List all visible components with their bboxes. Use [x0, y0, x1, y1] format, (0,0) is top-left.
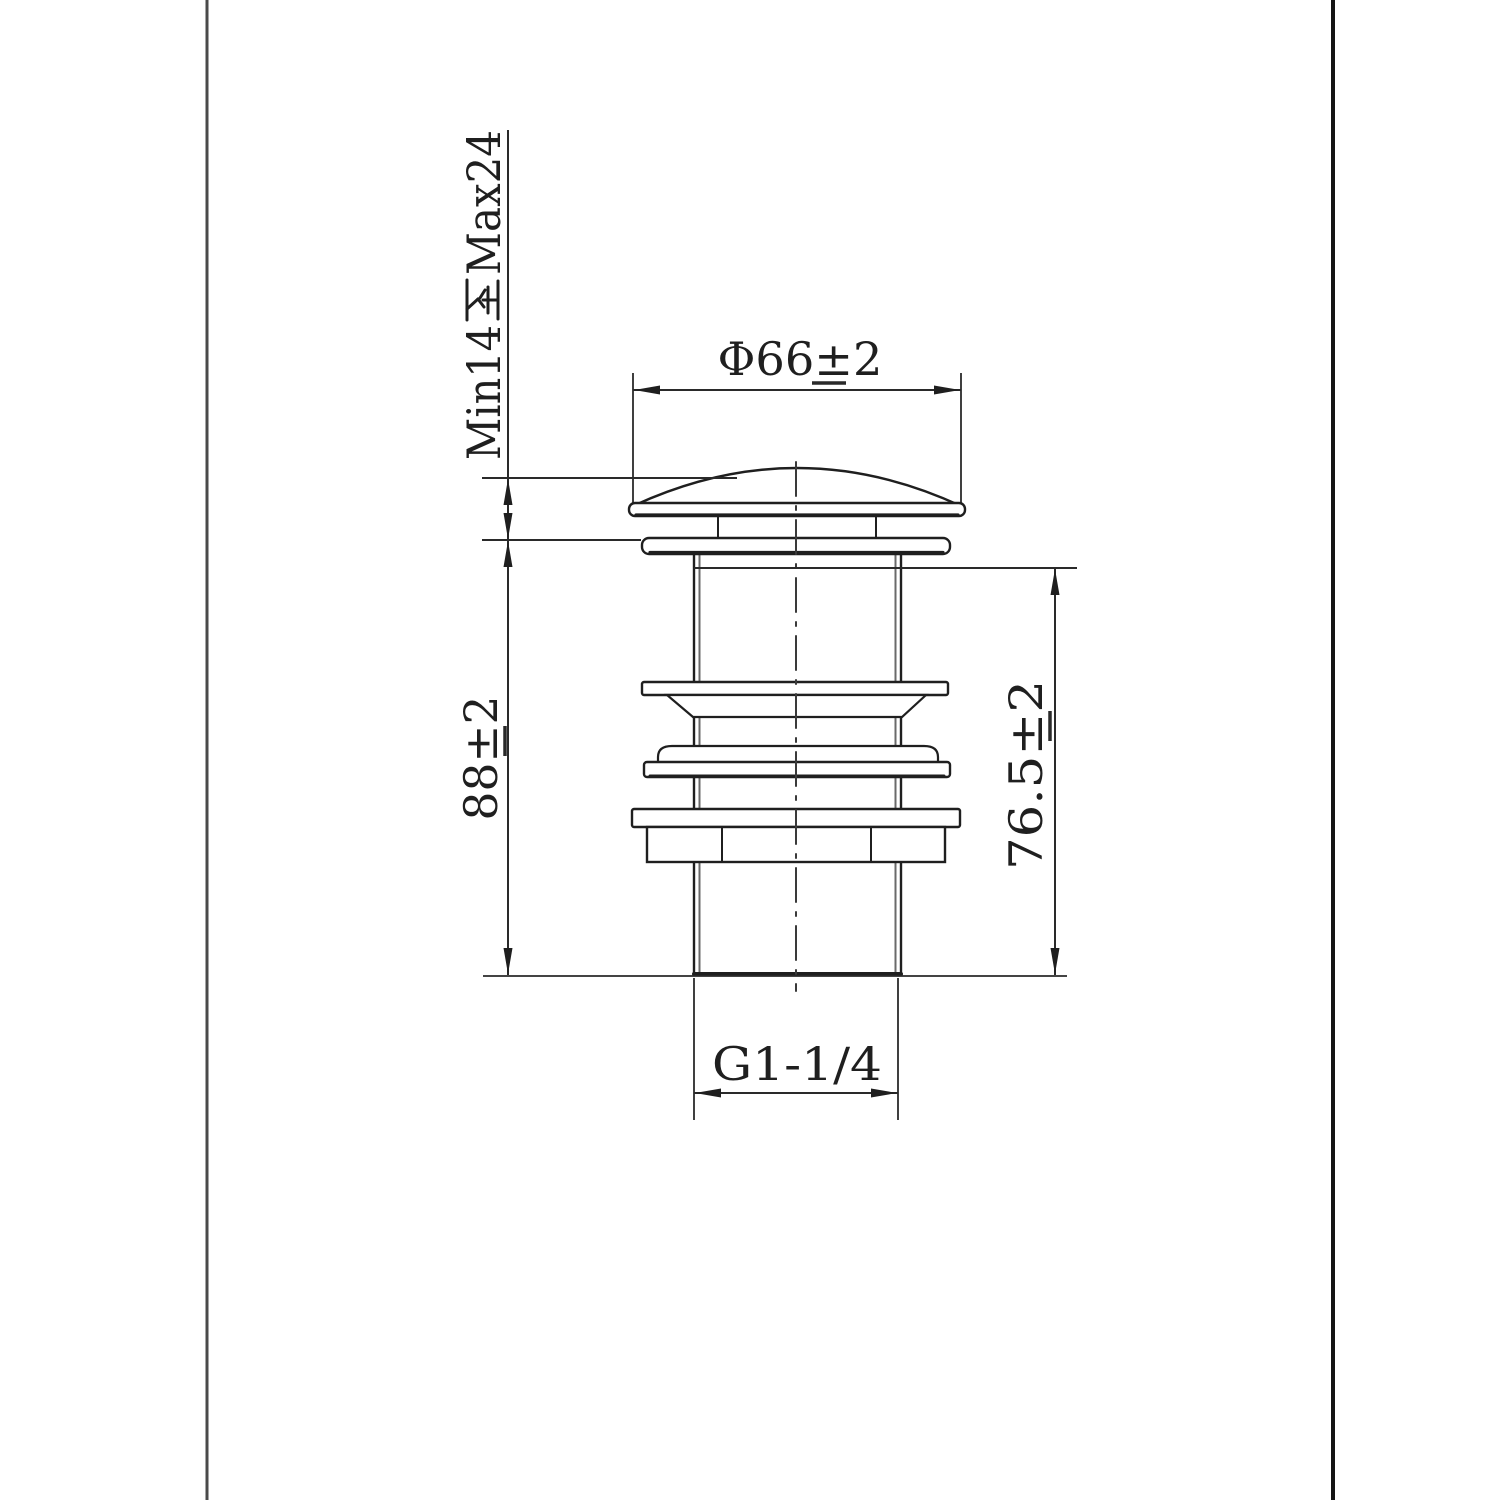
arrowhead-up	[1051, 569, 1060, 595]
drain-body	[629, 462, 965, 991]
arrowhead-down	[1051, 948, 1060, 974]
cap-travel-dim-label-prefix: Min14	[457, 325, 511, 460]
cap-travel-dim-label-suffix: Max24	[457, 130, 511, 275]
dim-thread-spec: G1-1/4	[694, 978, 898, 1120]
cap-diameter-dim-label: Φ66±2	[718, 332, 883, 386]
cjk-zhi-glyph	[467, 280, 498, 320]
arrowhead-up	[504, 541, 513, 567]
arrowhead-right	[934, 386, 960, 395]
technical-drawing-canvas: Φ66±2	[0, 0, 1500, 1500]
overall-height-dim-label: 88±2	[454, 696, 508, 821]
thread-spec-dim-label: G1-1/4	[712, 1037, 882, 1091]
thread-length-dim-label: 76.5±2	[999, 680, 1053, 870]
arrowhead-up	[504, 479, 513, 505]
arrowhead-left	[634, 386, 660, 395]
arrowhead-down	[504, 513, 513, 539]
arrowhead-down	[504, 948, 513, 974]
dim-overall-height: 88±2	[454, 541, 513, 974]
drawing-sheet: Φ66±2	[0, 0, 1500, 1500]
